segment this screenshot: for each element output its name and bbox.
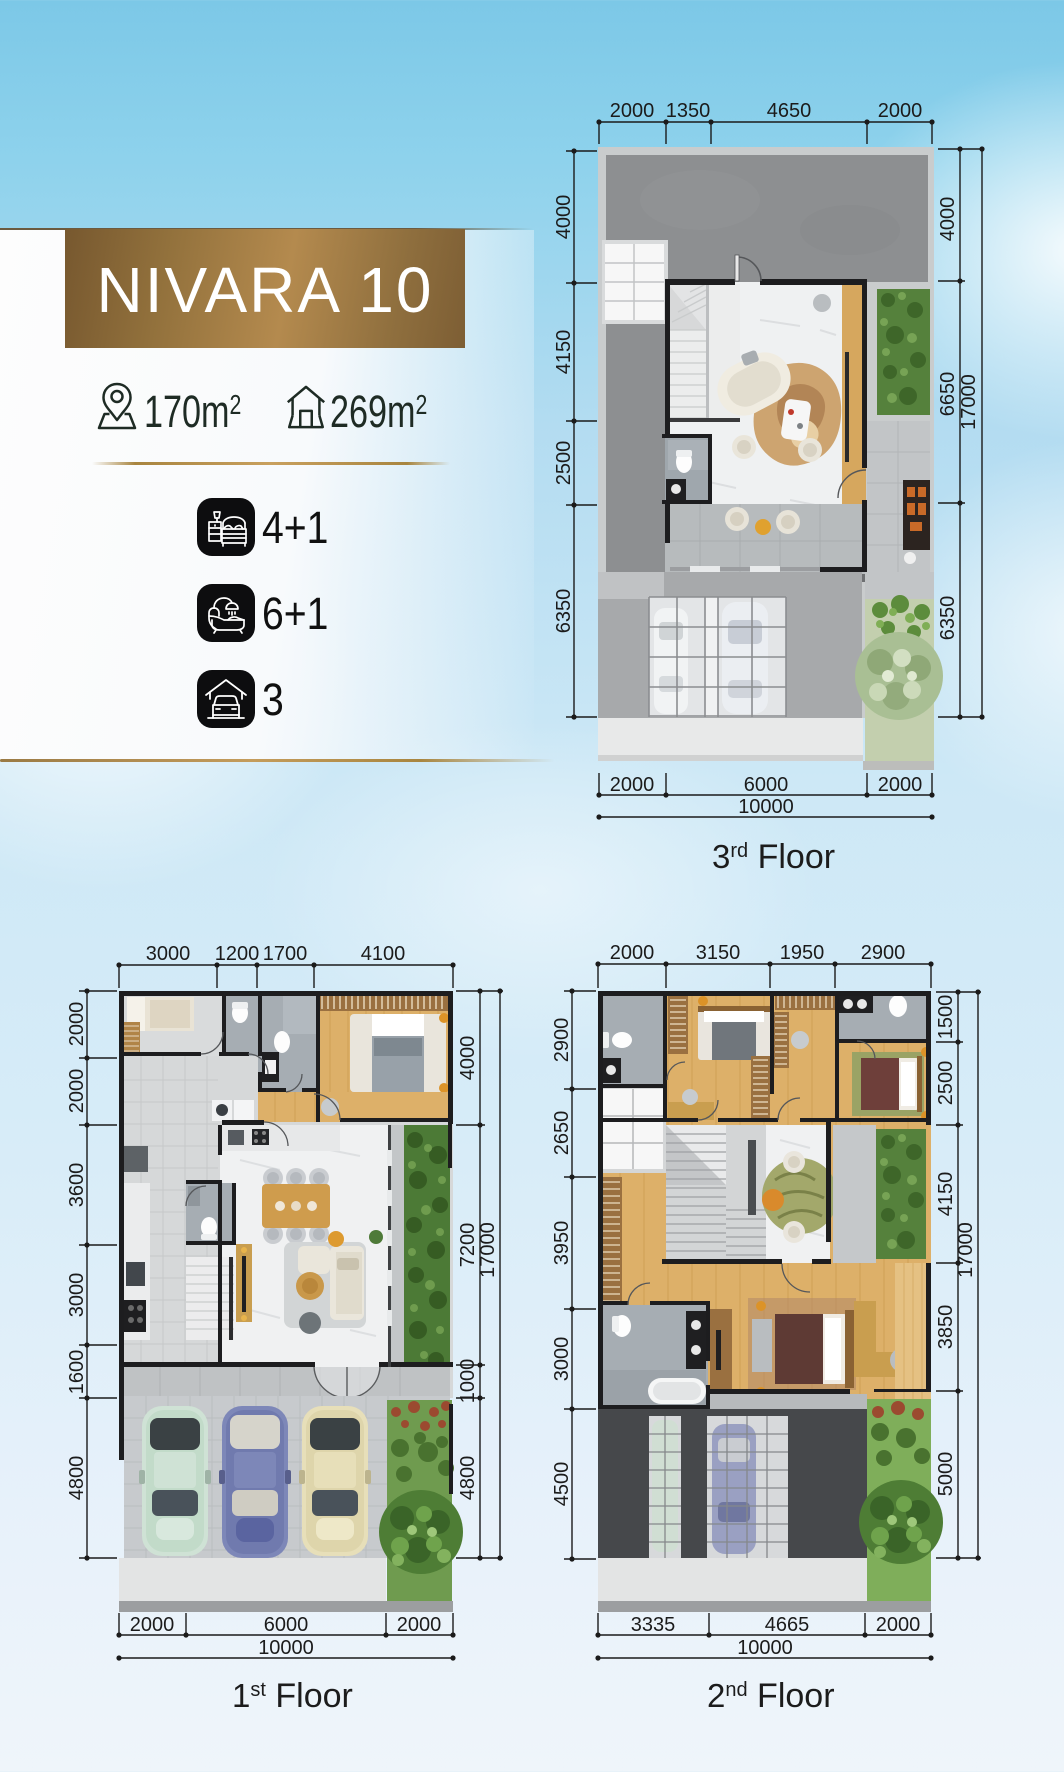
svg-text:4800: 4800 [66,1456,88,1501]
svg-text:7200: 7200 [457,1223,479,1268]
svg-text:4150: 4150 [935,1172,957,1217]
svg-text:1950: 1950 [780,945,825,964]
svg-text:10000: 10000 [258,1637,314,1659]
svg-text:2000: 2000 [130,1614,175,1636]
svg-text:1500: 1500 [935,995,957,1040]
svg-text:3950: 3950 [551,1221,573,1266]
svg-text:2650: 2650 [551,1111,573,1156]
svg-text:4500: 4500 [551,1462,573,1507]
svg-text:4665: 4665 [765,1614,810,1636]
svg-text:1000: 1000 [457,1359,479,1404]
svg-text:2500: 2500 [555,441,575,486]
svg-text:1200: 1200 [215,945,260,965]
svg-text:6000: 6000 [264,1614,309,1636]
svg-text:2000: 2000 [66,1002,88,1047]
svg-text:3335: 3335 [631,1614,676,1636]
svg-text:3000: 3000 [146,945,191,965]
svg-text:4650: 4650 [767,100,812,122]
svg-text:6350: 6350 [937,596,959,641]
svg-text:6650: 6650 [937,372,959,417]
svg-text:3rd Floor: 3rd Floor [712,838,835,876]
svg-text:3600: 3600 [66,1163,88,1208]
svg-text:6350: 6350 [555,589,575,634]
svg-text:2nd Floor: 2nd Floor [707,1677,835,1715]
svg-text:2000: 2000 [397,1614,442,1636]
svg-text:2900: 2900 [861,945,906,964]
svg-text:2000: 2000 [878,774,923,796]
svg-text:1350: 1350 [666,100,711,122]
svg-text:4100: 4100 [361,945,406,965]
svg-text:4150: 4150 [555,330,575,375]
svg-text:2000: 2000 [610,774,655,796]
svg-text:10000: 10000 [738,796,794,818]
svg-text:2000: 2000 [610,945,655,964]
svg-text:1600: 1600 [66,1350,88,1395]
svg-text:2900: 2900 [551,1018,573,1063]
svg-text:4800: 4800 [457,1456,479,1501]
svg-text:3150: 3150 [696,945,741,964]
svg-text:17000: 17000 [955,1222,977,1278]
svg-text:4000: 4000 [937,197,959,242]
svg-text:10000: 10000 [737,1637,793,1659]
svg-text:2000: 2000 [610,100,655,122]
svg-text:17000: 17000 [477,1222,499,1278]
svg-text:5000: 5000 [935,1452,957,1497]
svg-text:2000: 2000 [66,1069,88,1114]
svg-text:1st Floor: 1st Floor [232,1677,353,1715]
svg-text:4000: 4000 [555,195,575,240]
svg-text:3000: 3000 [551,1337,573,1382]
svg-text:17000: 17000 [958,374,980,430]
svg-text:2000: 2000 [876,1614,921,1636]
svg-text:3850: 3850 [935,1305,957,1350]
svg-text:3000: 3000 [66,1273,88,1318]
svg-text:4000: 4000 [457,1036,479,1081]
svg-text:2000: 2000 [878,100,923,122]
svg-text:1700: 1700 [263,945,308,965]
svg-text:6000: 6000 [744,774,789,796]
svg-text:2500: 2500 [935,1061,957,1106]
